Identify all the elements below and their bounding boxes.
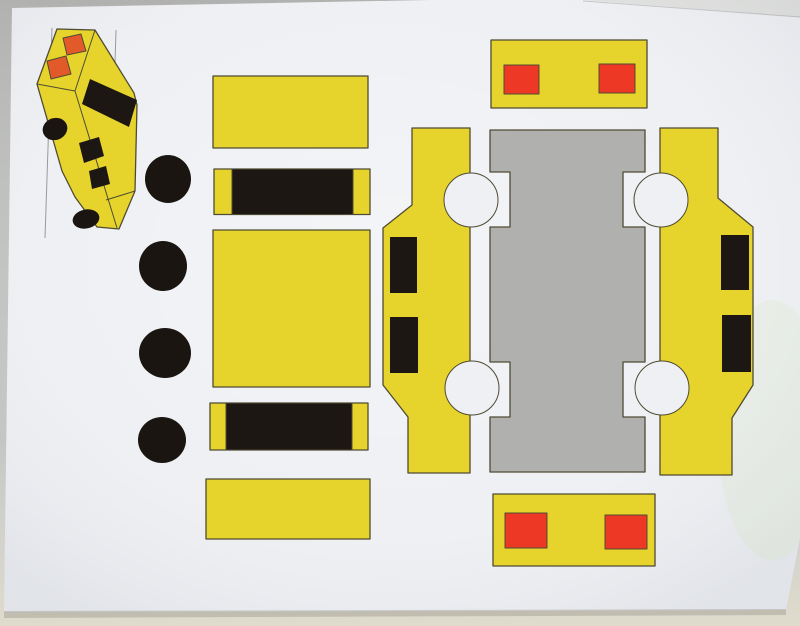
piece-hood — [213, 230, 370, 387]
photo-stage — [0, 0, 800, 626]
side-window — [390, 317, 418, 373]
wheel-arch-cutout — [444, 173, 498, 227]
wheel-disc — [139, 328, 191, 378]
piece-window-band-rear — [210, 403, 368, 450]
bumper-light — [504, 65, 539, 94]
side-window — [721, 235, 749, 290]
bumper-light — [605, 515, 647, 549]
bumper-panel-top — [491, 40, 647, 108]
wheel-disc — [139, 241, 187, 291]
piece-roof — [213, 76, 368, 148]
wheel-arch-cutout — [635, 361, 689, 415]
bumper-panel-bottom — [493, 494, 655, 566]
wheel-disc — [138, 417, 186, 463]
window-band-glass — [226, 403, 352, 450]
papercraft-photo — [0, 0, 800, 626]
piece-window-band-front — [214, 169, 370, 215]
side-window — [722, 315, 751, 372]
bumper-light — [599, 64, 635, 93]
wheel-arch-cutout — [445, 361, 499, 415]
wheel-arch-cutout — [634, 173, 688, 227]
window-band-glass — [232, 169, 353, 215]
side-window — [390, 237, 417, 293]
piece-trunk — [206, 479, 370, 539]
wheel-disc — [145, 155, 191, 203]
roof-floor-panel — [490, 130, 645, 472]
bumper-light — [505, 513, 547, 548]
